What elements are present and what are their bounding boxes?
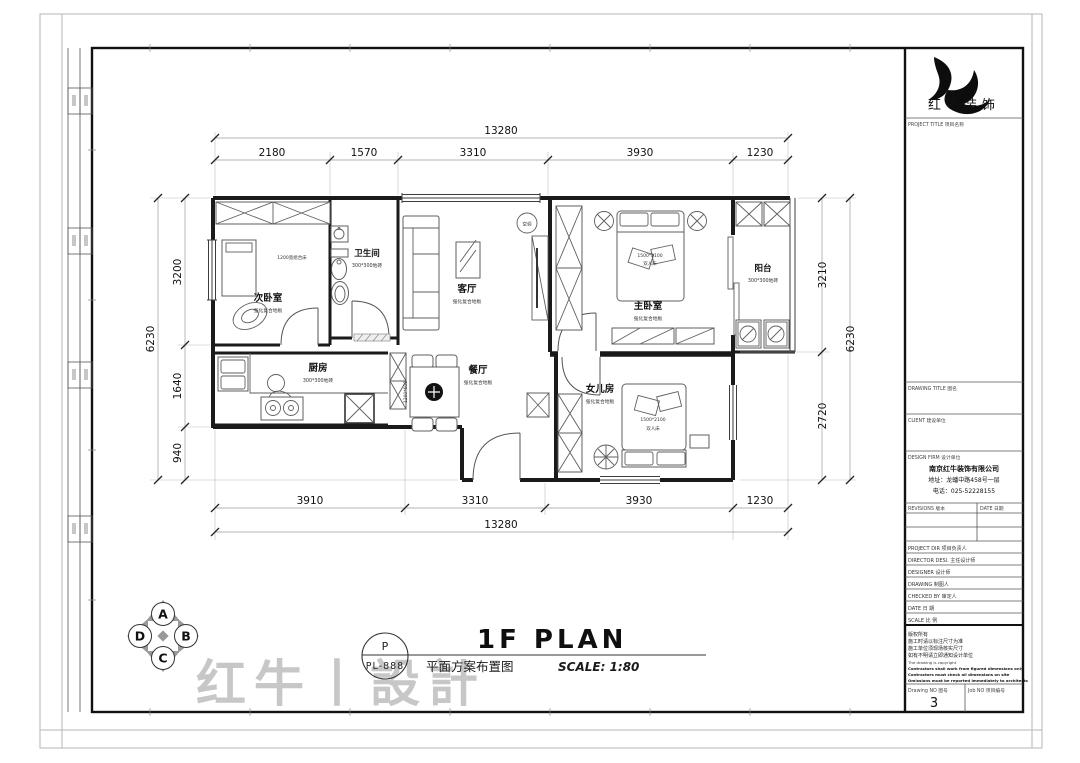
- stamp-code: PL-888: [366, 661, 404, 672]
- furniture-balcony: [736, 202, 790, 348]
- svg-text:强化复合地板: 强化复合地板: [254, 307, 283, 314]
- left-ref-strip: [68, 48, 92, 712]
- svg-text:施工时请以标注尺寸为准: 施工时请以标注尺寸为准: [908, 638, 963, 645]
- daughter-bed-type: 双人床: [646, 425, 660, 432]
- furniture-daughter-room: 1500*2100 双人床: [558, 384, 709, 472]
- svg-text:The drawing is copyright: The drawing is copyright: [907, 660, 957, 665]
- svg-text:强化复合地板: 强化复合地板: [453, 298, 482, 305]
- svg-text:如有不明请立即通知设计单位: 如有不明请立即通知设计单位: [908, 652, 973, 659]
- daughter-bed: 1500*2100 双人床: [622, 384, 686, 467]
- washbasin: [331, 226, 348, 242]
- room-second-bedroom: 次卧室: [254, 292, 283, 304]
- sofa: [403, 216, 439, 330]
- svg-text:2720: 2720: [817, 403, 829, 430]
- svg-text:6230: 6230: [845, 326, 857, 353]
- washing-machine: [736, 320, 761, 348]
- svg-text:1570: 1570: [351, 147, 378, 159]
- plan-title-en: 1F PLAN: [477, 625, 627, 655]
- svg-text:施工单位须现场核实尺寸: 施工单位须现场核实尺寸: [908, 645, 963, 652]
- compass-c: C: [158, 651, 167, 666]
- svg-text:1230: 1230: [747, 495, 774, 507]
- company-logo: 红牛装饰: [928, 57, 1000, 114]
- row-director: DIRECTOR DESI. 主任设计师: [908, 557, 975, 564]
- firm-address: 地址：龙蟠中路458号一层: [928, 476, 999, 484]
- room-daughter: 女儿房: [586, 383, 615, 395]
- floorplan-svg: 空调 1500*2100 双人床: [0, 0, 1080, 763]
- ac-label: 空调: [523, 221, 532, 228]
- firm-name: 南京红牛装饰有限公司: [929, 464, 999, 473]
- svg-text:1230: 1230: [747, 147, 774, 159]
- round-stool: [595, 212, 614, 231]
- daughter-room-window-right: [730, 385, 737, 440]
- row-checked: CHECKED BY 审定人: [908, 593, 957, 600]
- balcony-rail: [790, 198, 795, 352]
- svg-text:13280: 13280: [484, 125, 517, 137]
- svg-text:3200: 3200: [172, 259, 184, 286]
- air-conditioner: 空调: [517, 213, 537, 233]
- svg-text:强化复合地板: 强化复合地板: [464, 379, 493, 386]
- furniture-bathroom: [331, 226, 390, 341]
- svg-text:6230: 6230: [145, 326, 157, 353]
- drawing-no-label: Drawing NO 图号: [908, 688, 948, 694]
- svg-text:2180: 2180: [259, 147, 286, 159]
- kitchen-sink: [218, 357, 248, 391]
- drawing-title-label: DRAWING TITLE 图名: [908, 385, 957, 392]
- room-bathroom: 卫生间: [354, 248, 380, 259]
- dim-top: 13280 2180 1570 3310 3930 1230: [211, 125, 792, 164]
- row-drawing: DRAWING 制图人: [908, 581, 949, 588]
- personnel-rows: PROJECT DIR 项目负责人 DIRECTOR DESI. 主任设计师 D…: [908, 545, 975, 624]
- toilet: [331, 249, 348, 280]
- plan-scale-note: SCALE: 1:80: [558, 660, 639, 674]
- room-living: 客厅: [456, 283, 477, 295]
- round-stool: [688, 212, 707, 231]
- door-threshold: [354, 334, 390, 341]
- compass-a: A: [158, 607, 168, 622]
- plan-title-cn: 平面方案布置图: [426, 659, 514, 674]
- tv-wall: [532, 236, 548, 320]
- svg-text:13280: 13280: [484, 519, 517, 531]
- svg-text:3930: 3930: [627, 147, 654, 159]
- furniture-living: 空调: [403, 213, 548, 330]
- compass-b: B: [181, 629, 191, 644]
- design-firm-label: DESIGN FIRM 设计单位: [908, 454, 961, 461]
- tv-bench: [456, 240, 480, 278]
- dim-bottom: 3910 3310 3930 1230 13280: [211, 495, 792, 536]
- svg-text:Contractors shall work from fi: Contractors shall work from figured dime…: [908, 666, 1024, 671]
- drawing-no-value: 3: [930, 696, 938, 711]
- svg-text:300*300地砖: 300*300地砖: [748, 277, 779, 284]
- room-master-bedroom: 主卧室: [634, 300, 663, 312]
- daughter-room-window-bottom: [600, 477, 660, 484]
- svg-text:940: 940: [172, 443, 184, 463]
- living-window: [402, 193, 540, 203]
- mop-basin: [332, 282, 349, 305]
- title-block: 红牛装饰 PROJECT TITLE 项目名称 DRAWING TITLE 图名…: [905, 57, 1029, 712]
- master-bed: 1500*2100 双人床: [617, 211, 684, 301]
- client-label: CLIENT 建设单位: [908, 417, 946, 424]
- svg-text:Contractors must check all dim: Contractors must check all dimensions on…: [908, 672, 1010, 677]
- dim-left: 3200 1640 940 6230: [145, 194, 189, 484]
- second-bedroom-window: [207, 240, 217, 300]
- svg-text:3210: 3210: [817, 262, 829, 289]
- job-no-label: Job NO 项目编号: [967, 687, 1005, 694]
- round-table: [594, 445, 618, 469]
- stamp-letter: P: [382, 640, 389, 653]
- svg-text:强化复合地板: 强化复合地板: [586, 398, 615, 405]
- washing-machine: [764, 320, 789, 348]
- svg-text:Omissions must be reported imm: Omissions must be reported immediately t…: [908, 678, 1029, 683]
- row-designer: DESIGNER 设计师: [908, 569, 951, 576]
- bench: [612, 328, 714, 344]
- furniture-second-bedroom: [216, 202, 330, 335]
- drawing-sheet: 空调 1500*2100 双人床: [0, 0, 1080, 763]
- gas-stove: [261, 397, 303, 420]
- furniture-dining: 1200*600: [403, 355, 459, 431]
- room-balcony: 阳台: [754, 263, 772, 274]
- row-scale: SCALE 比 例: [908, 617, 937, 624]
- row-project-dir: PROJECT DIR 项目负责人: [908, 545, 967, 552]
- svg-text:3310: 3310: [460, 147, 487, 159]
- svg-text:300*300地砖: 300*300地砖: [352, 262, 383, 269]
- drawing-number-section: Drawing NO 图号 3 Job NO 项目编号: [908, 687, 1005, 711]
- svg-text:强化复合地板: 强化复合地板: [634, 315, 663, 322]
- row-date: DATE 日 期: [908, 606, 934, 612]
- dining-table-size: 1200*600: [403, 381, 409, 403]
- date-col-label: DATE 日期: [980, 506, 1004, 512]
- furniture-master-bedroom: 1500*2100 双人床: [556, 206, 714, 344]
- svg-text:3930: 3930: [626, 495, 653, 507]
- compass-d: D: [135, 629, 145, 644]
- svg-text:300*300地砖: 300*300地砖: [303, 377, 334, 384]
- nightstand: [690, 435, 709, 448]
- revisions-label: REVISIONS 版本: [908, 505, 945, 512]
- project-title-label: PROJECT TITLE 项目名称: [908, 121, 964, 128]
- dim-right: 3210 2720 6230: [817, 194, 857, 484]
- company-logo-text: 红牛装饰: [928, 97, 1000, 113]
- compass-logo: A B C D: [127, 600, 199, 672]
- second-bedroom-bed-note: 1200宽组合床: [277, 254, 307, 261]
- copyright-notes: 版权所有 施工时请以标注尺寸为准 施工单位须现场核实尺寸 如有不明请立即通知设计…: [907, 631, 1029, 683]
- master-bed-type: 双人床: [643, 260, 657, 267]
- room-dining: 餐厅: [467, 364, 488, 376]
- sheet-footer: 红牛丨設計 A B C D P PL-888 1F PLAN 平面方案布置图 S…: [127, 600, 706, 713]
- entry-door: [473, 433, 520, 480]
- svg-text:3910: 3910: [297, 495, 324, 507]
- grid-ref-ticks: [88, 44, 850, 716]
- second-bedroom-door: [281, 308, 318, 345]
- svg-text:1640: 1640: [172, 373, 184, 400]
- svg-text:3310: 3310: [462, 495, 489, 507]
- kitchen-column: [345, 394, 374, 423]
- daughter-bed-size: 1500*2100: [640, 417, 665, 423]
- room-kitchen: 厨房: [308, 362, 327, 374]
- corridor-pier: [527, 393, 549, 417]
- bathroom-door: [352, 301, 389, 338]
- master-bed-size: 1500*2100: [637, 253, 662, 259]
- firm-phone: 电话：025-52228155: [933, 487, 995, 495]
- floor-plan: 空调 1500*2100 双人床: [145, 125, 857, 540]
- svg-text:版权所有: 版权所有: [908, 631, 928, 638]
